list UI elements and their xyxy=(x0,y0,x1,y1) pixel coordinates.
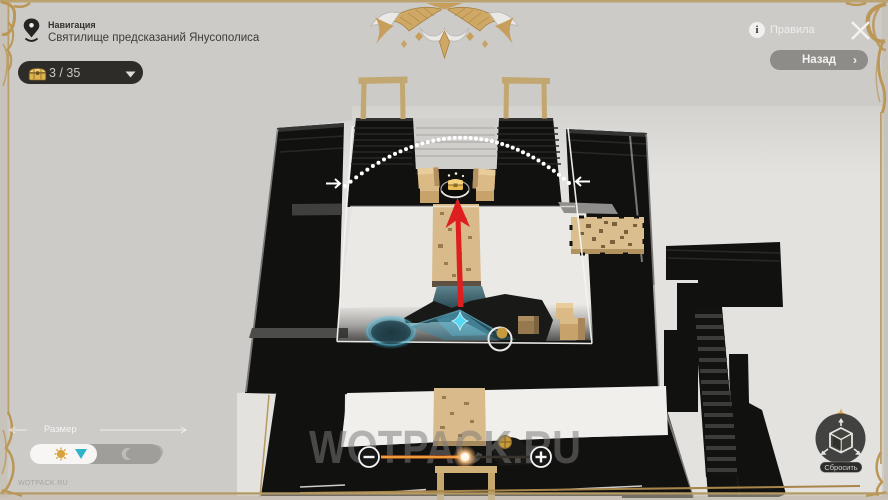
svg-text:Сбросить: Сбросить xyxy=(824,463,857,472)
